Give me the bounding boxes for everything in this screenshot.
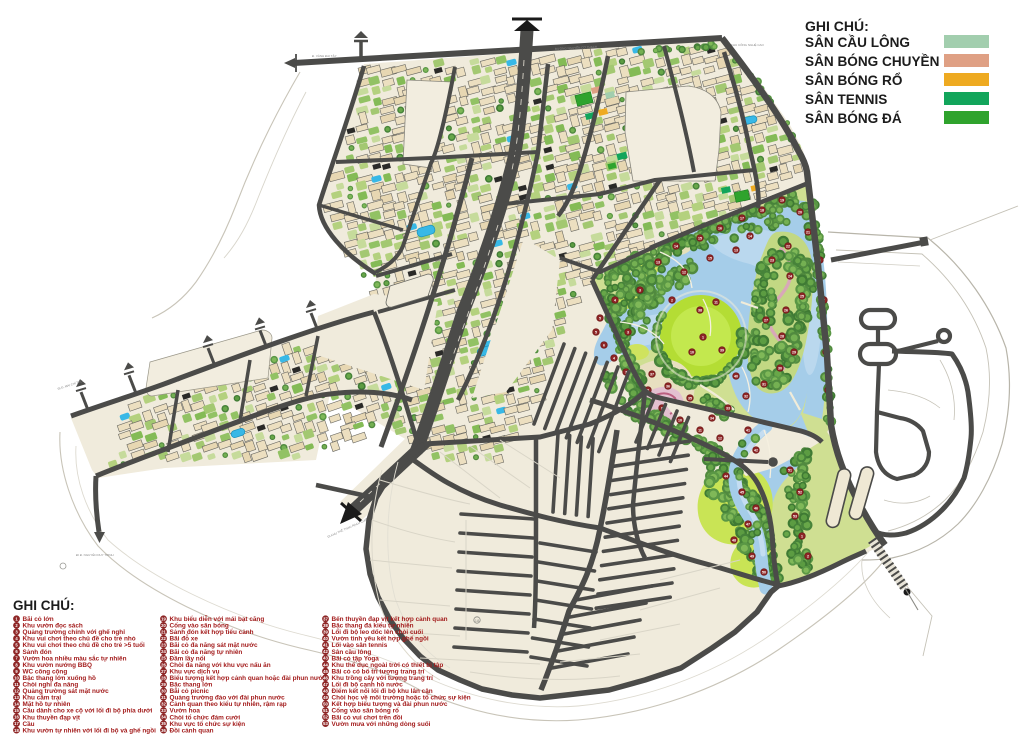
svg-text:18: 18 — [475, 618, 480, 623]
svg-text:15: 15 — [14, 708, 19, 713]
svg-text:40: 40 — [323, 636, 328, 641]
svg-text:21: 21 — [161, 630, 166, 635]
svg-text:SÂN TENNIS: SÂN TENNIS — [805, 92, 887, 107]
svg-text:49: 49 — [323, 695, 328, 700]
svg-text:5: 5 — [595, 330, 597, 334]
svg-text:21: 21 — [806, 230, 810, 234]
svg-text:5: 5 — [599, 316, 601, 320]
svg-text:14: 14 — [748, 234, 752, 238]
svg-text:12: 12 — [718, 436, 722, 440]
svg-text:18: 18 — [14, 728, 19, 733]
svg-text:2: 2 — [807, 554, 809, 558]
svg-text:34: 34 — [161, 715, 166, 720]
svg-text:17: 17 — [14, 721, 19, 726]
svg-text:10: 10 — [690, 350, 694, 354]
svg-text:45: 45 — [323, 669, 328, 674]
svg-text:ĐI Đ. NGUYỄN DUY TRINH: ĐI Đ. NGUYỄN DUY TRINH — [76, 552, 114, 557]
svg-text:Vườn mưa với những dòng suối: Vườn mưa với những dòng suối — [332, 720, 431, 728]
svg-text:Đồi cảnh quan: Đồi cảnh quan — [170, 725, 214, 734]
svg-text:49: 49 — [750, 554, 754, 558]
svg-text:26: 26 — [161, 662, 166, 667]
svg-text:42: 42 — [754, 448, 758, 452]
svg-text:15: 15 — [708, 256, 712, 260]
svg-text:12: 12 — [14, 688, 19, 693]
svg-text:1: 1 — [702, 335, 704, 339]
svg-text:41: 41 — [323, 643, 328, 648]
svg-text:14: 14 — [14, 702, 19, 707]
svg-text:47: 47 — [746, 522, 750, 526]
svg-text:24: 24 — [788, 274, 792, 278]
svg-text:39: 39 — [323, 630, 328, 635]
svg-text:Đ. VÀNH ĐAI TÂY: Đ. VÀNH ĐAI TÂY — [312, 53, 337, 58]
svg-text:GHI CHÚ:: GHI CHÚ: — [805, 17, 869, 34]
svg-text:38: 38 — [323, 623, 328, 628]
svg-text:25: 25 — [800, 294, 804, 298]
svg-text:Khu vườn tự nhiên với lối đi b: Khu vườn tự nhiên với lối đi bộ và ghế n… — [23, 725, 157, 734]
svg-text:52: 52 — [323, 715, 328, 720]
svg-text:35: 35 — [688, 396, 692, 400]
svg-text:52: 52 — [798, 490, 802, 494]
svg-text:22: 22 — [786, 244, 790, 248]
svg-text:24: 24 — [161, 649, 166, 654]
svg-text:23: 23 — [161, 643, 166, 648]
svg-text:26: 26 — [784, 308, 788, 312]
svg-text:16: 16 — [14, 715, 19, 720]
svg-text:6: 6 — [603, 343, 605, 347]
svg-text:27: 27 — [161, 669, 166, 674]
svg-text:44: 44 — [724, 474, 728, 478]
svg-text:19: 19 — [780, 198, 784, 202]
svg-text:20: 20 — [161, 623, 166, 628]
svg-text:31: 31 — [762, 382, 766, 386]
svg-text:44: 44 — [323, 662, 328, 667]
svg-text:47: 47 — [323, 682, 328, 687]
svg-text:1: 1 — [801, 534, 803, 538]
svg-text:15: 15 — [698, 236, 702, 240]
svg-text:36: 36 — [161, 728, 166, 733]
svg-text:50: 50 — [762, 570, 766, 574]
svg-text:30: 30 — [778, 366, 782, 370]
svg-text:38: 38 — [698, 308, 702, 312]
svg-text:ĐI KHU CÔNG NGHỆ CAO: ĐI KHU CÔNG NGHỆ CAO — [727, 42, 765, 47]
svg-text:23: 23 — [770, 258, 774, 262]
svg-text:20: 20 — [798, 210, 802, 214]
svg-text:10: 10 — [678, 418, 682, 422]
svg-text:22: 22 — [161, 636, 166, 641]
svg-text:GHI CHÚ:: GHI CHÚ: — [13, 598, 75, 613]
svg-text:13: 13 — [656, 260, 660, 264]
svg-text:45: 45 — [740, 490, 744, 494]
svg-text:32: 32 — [744, 394, 748, 398]
svg-text:43: 43 — [323, 656, 328, 661]
svg-text:53: 53 — [323, 721, 328, 726]
svg-text:11: 11 — [14, 682, 19, 687]
svg-text:37: 37 — [323, 616, 328, 621]
svg-text:51: 51 — [788, 468, 792, 472]
svg-text:48: 48 — [323, 688, 328, 693]
svg-text:29: 29 — [792, 350, 796, 354]
svg-text:50: 50 — [323, 702, 328, 707]
svg-text:25: 25 — [161, 656, 166, 661]
svg-text:37: 37 — [650, 372, 654, 376]
svg-text:40: 40 — [734, 374, 738, 378]
svg-text:39: 39 — [720, 348, 724, 352]
svg-text:30: 30 — [161, 688, 166, 693]
svg-text:11: 11 — [714, 300, 718, 304]
svg-text:3: 3 — [639, 288, 641, 292]
svg-text:11: 11 — [698, 428, 702, 432]
svg-text:36: 36 — [666, 384, 670, 388]
svg-text:31: 31 — [161, 695, 166, 700]
svg-text:16: 16 — [718, 226, 722, 230]
svg-text:29: 29 — [161, 682, 166, 687]
svg-text:35: 35 — [161, 721, 166, 726]
svg-text:34: 34 — [710, 416, 714, 420]
svg-text:42: 42 — [323, 649, 328, 654]
svg-text:SÂN BÓNG RỔ: SÂN BÓNG RỔ — [805, 73, 902, 88]
svg-text:13: 13 — [734, 248, 738, 252]
svg-text:33: 33 — [161, 708, 166, 713]
svg-text:53: 53 — [793, 514, 797, 518]
svg-text:SÂN CẦU LÔNG: SÂN CẦU LÔNG — [805, 35, 910, 50]
svg-text:27: 27 — [764, 318, 768, 322]
svg-text:41: 41 — [746, 428, 750, 432]
svg-text:33: 33 — [726, 406, 730, 410]
svg-text:51: 51 — [323, 708, 328, 713]
svg-text:SÂN BÓNG CHUYỀN: SÂN BÓNG CHUYỀN — [805, 54, 939, 69]
svg-text:28: 28 — [780, 334, 784, 338]
svg-text:4: 4 — [614, 298, 616, 302]
svg-text:13: 13 — [14, 695, 19, 700]
svg-text:48: 48 — [732, 538, 736, 542]
svg-text:SÂN BÓNG ĐÁ: SÂN BÓNG ĐÁ — [805, 111, 902, 126]
svg-text:17: 17 — [740, 216, 744, 220]
svg-text:3: 3 — [627, 330, 629, 334]
svg-text:28: 28 — [161, 675, 166, 680]
svg-text:4: 4 — [613, 356, 615, 360]
svg-text:12: 12 — [682, 270, 686, 274]
svg-text:19: 19 — [161, 616, 166, 621]
svg-text:14: 14 — [674, 244, 678, 248]
svg-text:10: 10 — [14, 675, 19, 680]
svg-text:46: 46 — [323, 675, 328, 680]
svg-text:18: 18 — [760, 208, 764, 212]
svg-text:46: 46 — [754, 506, 758, 510]
svg-text:32: 32 — [161, 702, 166, 707]
svg-text:2: 2 — [671, 298, 673, 302]
